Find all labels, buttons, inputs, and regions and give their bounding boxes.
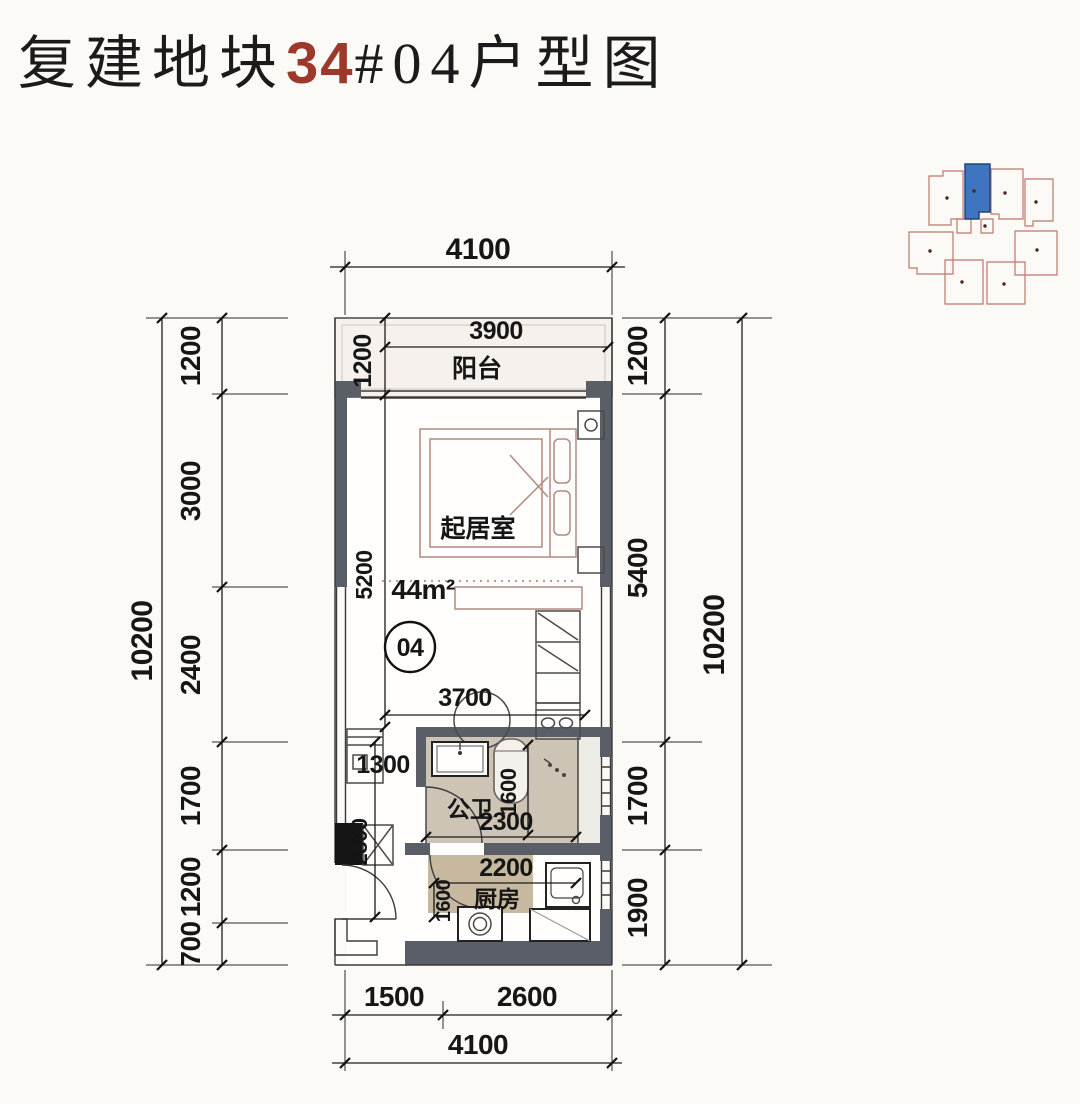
dim-kitchen-width: 2200 xyxy=(479,854,533,882)
dim-kitchen-side: 1600 xyxy=(433,879,455,922)
dim-balcony-depth: 1200 xyxy=(349,334,377,388)
dim-bottom-overall: 4100 xyxy=(448,1029,508,1060)
dim-right-seg-1: 5400 xyxy=(622,538,653,598)
dim-hall-depth: 2800 xyxy=(347,818,372,865)
dim-living-width: 3700 xyxy=(438,684,492,712)
dim-hall-width: 1300 xyxy=(356,751,410,779)
label-living-room: 起居室 xyxy=(440,514,515,543)
dim-left-seg-5: 700 xyxy=(175,921,206,966)
dim-living-depth: 5200 xyxy=(351,550,377,599)
title-prefix: 复建地块 xyxy=(18,31,286,96)
dim-right-seg-0: 1200 xyxy=(622,326,653,386)
dim-left-seg-2: 2400 xyxy=(175,635,206,695)
floor-plan-drawing: 4100 10200 1200 3000 2400 1700 1200 700 … xyxy=(120,215,830,1100)
dim-left-seg-0: 1200 xyxy=(175,326,206,386)
key-plan-highlighted-unit xyxy=(965,164,990,219)
dim-left-seg-1: 3000 xyxy=(175,461,206,521)
title-suffix: #04户型图 xyxy=(355,31,670,96)
dim-bottom-left: 1500 xyxy=(364,981,424,1012)
label-area: 44m² xyxy=(391,574,455,605)
floorplan-page: { "title": { "prefix": "复建地块", "block_no… xyxy=(0,0,1080,1104)
dim-balcony-width: 3900 xyxy=(469,317,523,345)
kitchen-washer xyxy=(458,907,502,941)
key-plan xyxy=(895,146,1073,324)
dim-left-seg-3: 1700 xyxy=(175,766,206,826)
label-bathroom: 公卫 xyxy=(447,796,493,822)
unit-number: 04 xyxy=(397,634,424,662)
dim-left-overall: 10200 xyxy=(126,601,159,682)
dim-right-seg-2: 1700 xyxy=(622,766,653,826)
title-block-number: 34 xyxy=(286,31,355,96)
page-title: 复建地块34#04户型图 xyxy=(18,16,670,100)
label-kitchen: 厨房 xyxy=(474,886,520,912)
label-balcony: 阳台 xyxy=(452,354,502,383)
dim-left-seg-4: 1200 xyxy=(175,857,206,917)
dim-top-overall: 4100 xyxy=(446,233,511,266)
dim-right-overall: 10200 xyxy=(698,595,731,676)
dim-bottom-right: 2600 xyxy=(497,981,557,1012)
dim-right-seg-3: 1900 xyxy=(622,878,653,938)
